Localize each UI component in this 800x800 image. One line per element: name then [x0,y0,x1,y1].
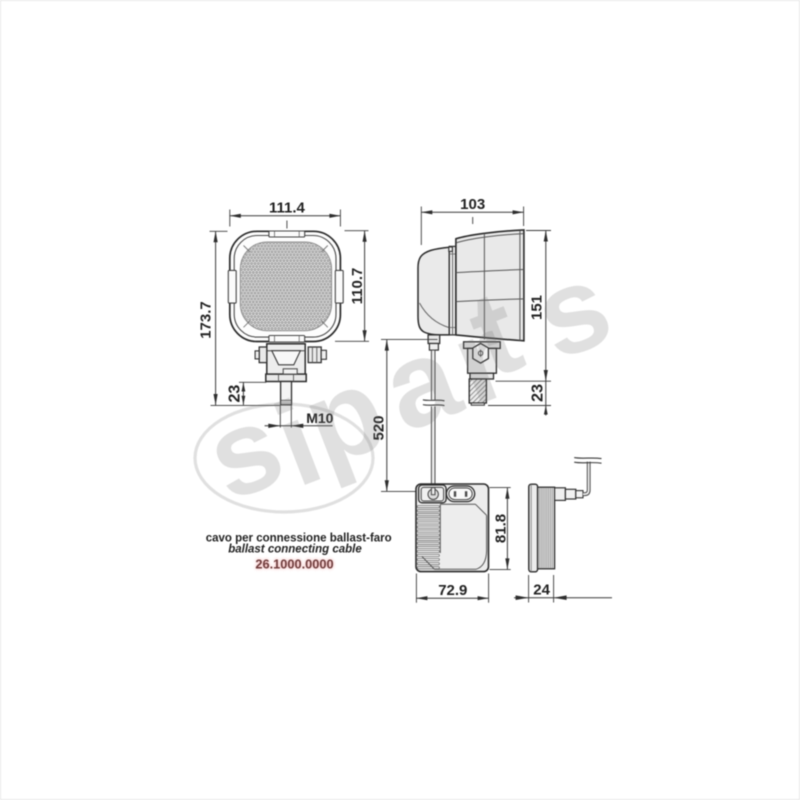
svg-text:ballast connecting cable: ballast connecting cable [228,544,362,556]
svg-text:111.4: 111.4 [269,200,306,217]
svg-text:110.7: 110.7 [349,268,366,305]
svg-text:103: 103 [460,196,485,213]
svg-text:173.7: 173.7 [198,301,215,339]
svg-text:72.9: 72.9 [438,582,467,599]
svg-text:26.1000.0000: 26.1000.0000 [255,557,333,572]
svg-text:24: 24 [533,581,550,598]
svg-text:cavo per connessione ballast-f: cavo per connessione ballast-faro [206,532,392,544]
svg-text:81.8: 81.8 [492,514,509,543]
